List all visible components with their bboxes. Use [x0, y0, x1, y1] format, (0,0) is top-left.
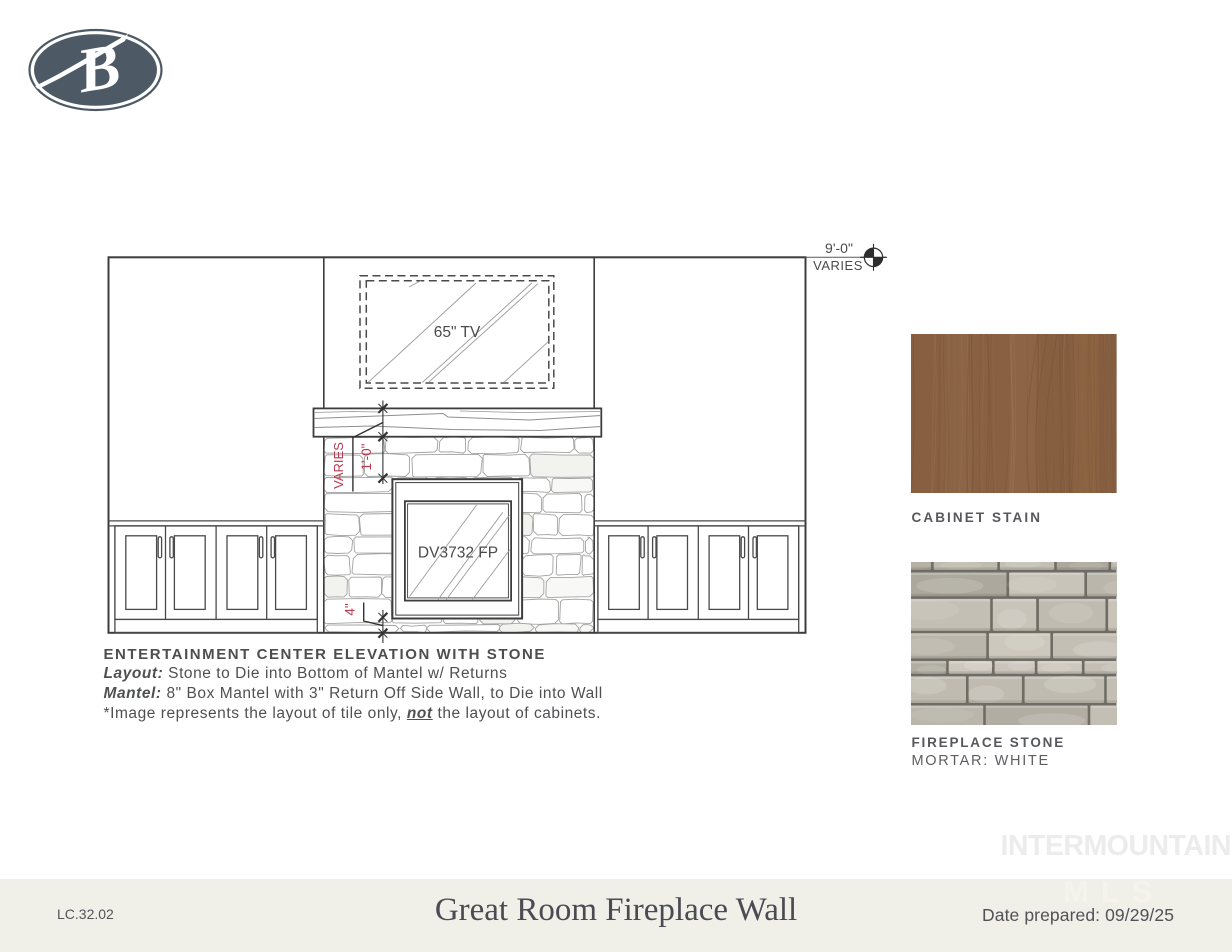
- svg-text:VARIES: VARIES: [813, 258, 863, 273]
- svg-text:9'-0": 9'-0": [825, 240, 853, 256]
- svg-text:65" TV: 65" TV: [434, 324, 481, 341]
- svg-text:DV3732 FP: DV3732 FP: [418, 545, 498, 562]
- svg-text:1'-0": 1'-0": [359, 443, 374, 470]
- svg-text:VARIES: VARIES: [331, 442, 346, 489]
- svg-text:4": 4": [343, 603, 358, 616]
